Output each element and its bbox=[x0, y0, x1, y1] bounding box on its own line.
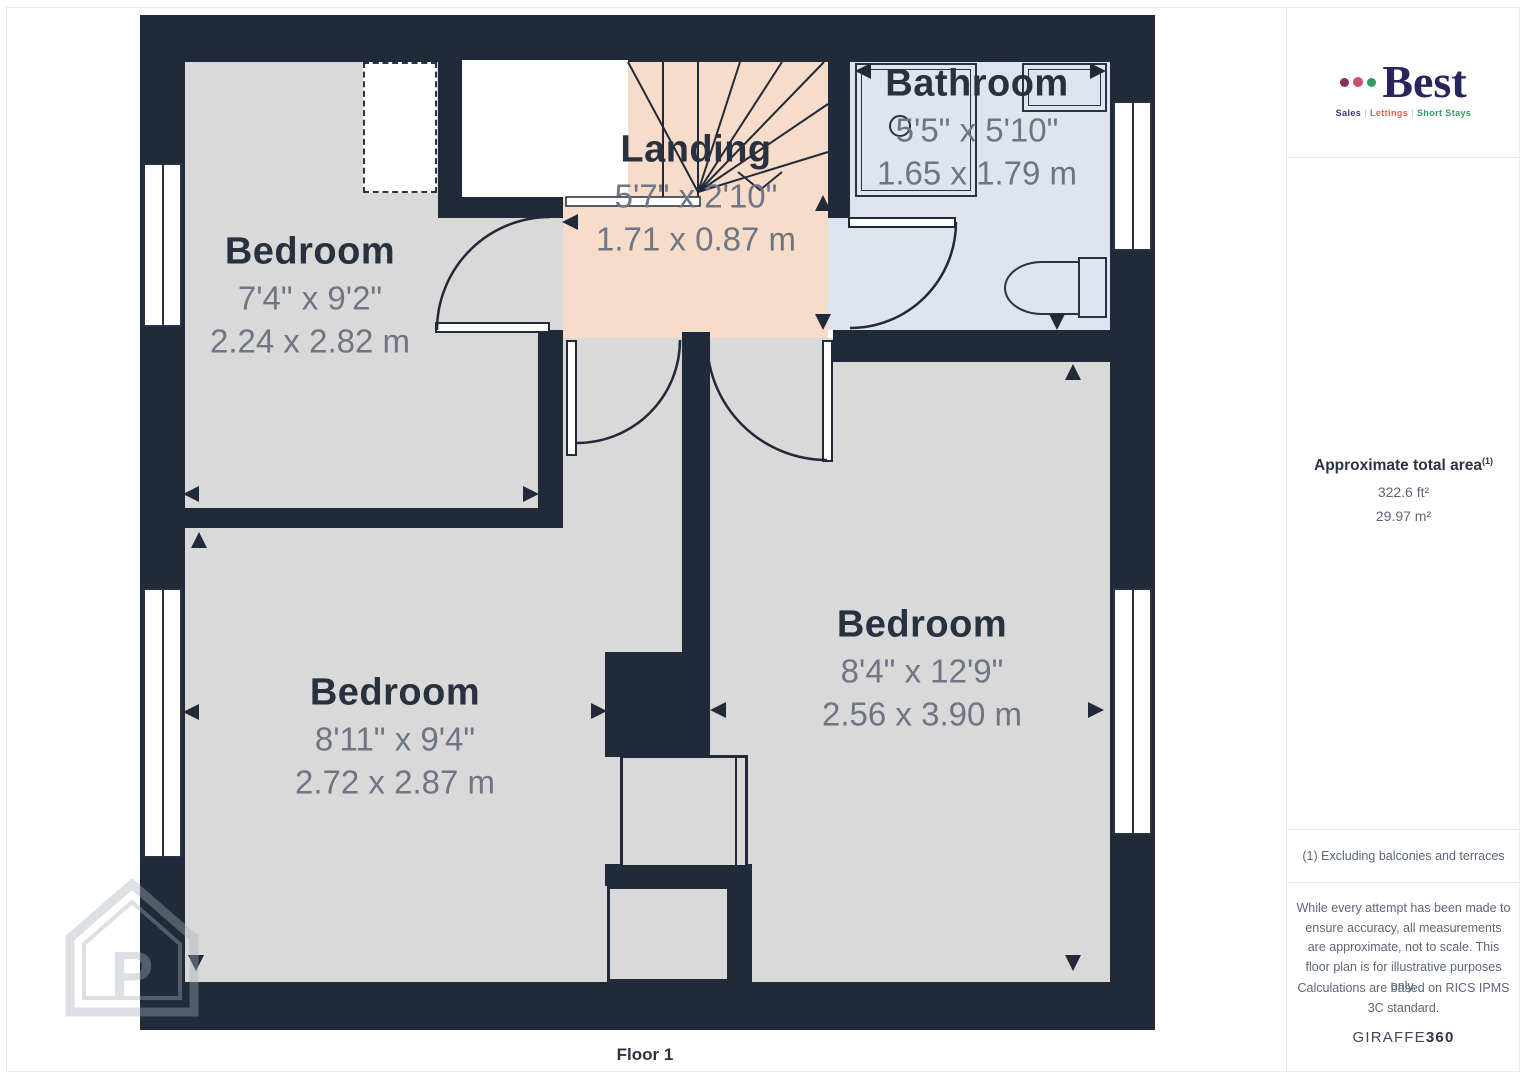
sidebar: Best Sales|Lettings|Short Stays Approxim… bbox=[1286, 7, 1520, 1072]
floorplan-page: P Bedroom 7'4" x 9'2" 2.24 x 2.82 m Land… bbox=[0, 0, 1526, 1080]
room-metric: 1.71 x 0.87 m bbox=[596, 218, 796, 262]
room-label-bathroom: Bathroom 5'5" x 5'10" 1.65 x 1.79 m bbox=[877, 61, 1077, 196]
room-imperial: 5'7" x 2'10" bbox=[596, 174, 796, 218]
logo-dot-icon bbox=[1353, 77, 1363, 87]
total-area-superscript: (1) bbox=[1482, 456, 1493, 466]
total-area-metric: 29.97 m² bbox=[1287, 504, 1520, 528]
room-imperial: 5'5" x 5'10" bbox=[877, 108, 1077, 152]
room-name: Bedroom bbox=[210, 229, 410, 277]
logo-dot-icon bbox=[1340, 78, 1349, 87]
total-area-imperial: 322.6 ft² bbox=[1287, 480, 1520, 504]
room-label-bedroom-bottom-left: Bedroom 8'11" x 9'4" 2.72 x 2.87 m bbox=[295, 670, 495, 805]
tagline-separator: | bbox=[1361, 108, 1370, 118]
footnote-exclusions: (1) Excluding balconies and terraces bbox=[1296, 847, 1512, 867]
room-metric: 2.72 x 2.87 m bbox=[295, 761, 495, 805]
total-area-title-text: Approximate total area bbox=[1314, 457, 1482, 474]
watermark-letter: P bbox=[111, 938, 154, 1010]
room-metric: 1.65 x 1.79 m bbox=[877, 152, 1077, 196]
standard-text: Calculations are based on RICS IPMS 3C s… bbox=[1296, 979, 1512, 1018]
watermark-house-icon: P bbox=[70, 884, 194, 1012]
sidebar-divider bbox=[1287, 882, 1520, 883]
floor-plan: P Bedroom 7'4" x 9'2" 2.24 x 2.82 m Land… bbox=[0, 0, 1286, 1080]
giraffe360-360: 360 bbox=[1426, 1029, 1455, 1046]
floor-label: Floor 1 bbox=[617, 1045, 674, 1065]
giraffe360-giraffe: GIRAFFE bbox=[1352, 1029, 1425, 1046]
sidebar-divider bbox=[1287, 157, 1520, 158]
room-name: Landing bbox=[596, 127, 796, 175]
agency-logo: Best bbox=[1287, 59, 1520, 105]
sidebar-divider bbox=[1287, 829, 1520, 830]
tagline-short-stays: Short Stays bbox=[1417, 108, 1471, 118]
room-name: Bathroom bbox=[877, 61, 1077, 109]
room-imperial: 8'11" x 9'4" bbox=[295, 717, 495, 761]
room-label-bedroom-bottom-right: Bedroom 8'4" x 12'9" 2.56 x 3.90 m bbox=[822, 602, 1022, 737]
tagline-separator: | bbox=[1408, 108, 1417, 118]
tagline-lettings: Lettings bbox=[1370, 108, 1408, 118]
room-metric: 2.24 x 2.82 m bbox=[210, 320, 410, 364]
room-imperial: 8'4" x 12'9" bbox=[822, 649, 1022, 693]
brand-name: Best bbox=[1382, 59, 1466, 105]
total-area-block: Approximate total area(1) 322.6 ft² 29.9… bbox=[1287, 451, 1520, 528]
room-imperial: 7'4" x 9'2" bbox=[210, 276, 410, 320]
giraffe360-logo: GIRAFFE360 bbox=[1287, 1029, 1520, 1046]
logo-dot-icon bbox=[1367, 78, 1376, 87]
room-name: Bedroom bbox=[295, 670, 495, 718]
room-name: Bedroom bbox=[822, 602, 1022, 650]
brand-tagline: Sales|Lettings|Short Stays bbox=[1287, 108, 1520, 118]
room-label-bedroom-top-left: Bedroom 7'4" x 9'2" 2.24 x 2.82 m bbox=[210, 229, 410, 364]
tagline-sales: Sales bbox=[1336, 108, 1362, 118]
room-label-landing: Landing 5'7" x 2'10" 1.71 x 0.87 m bbox=[596, 127, 796, 262]
room-metric: 2.56 x 3.90 m bbox=[822, 693, 1022, 737]
total-area-title: Approximate total area(1) bbox=[1287, 451, 1520, 476]
